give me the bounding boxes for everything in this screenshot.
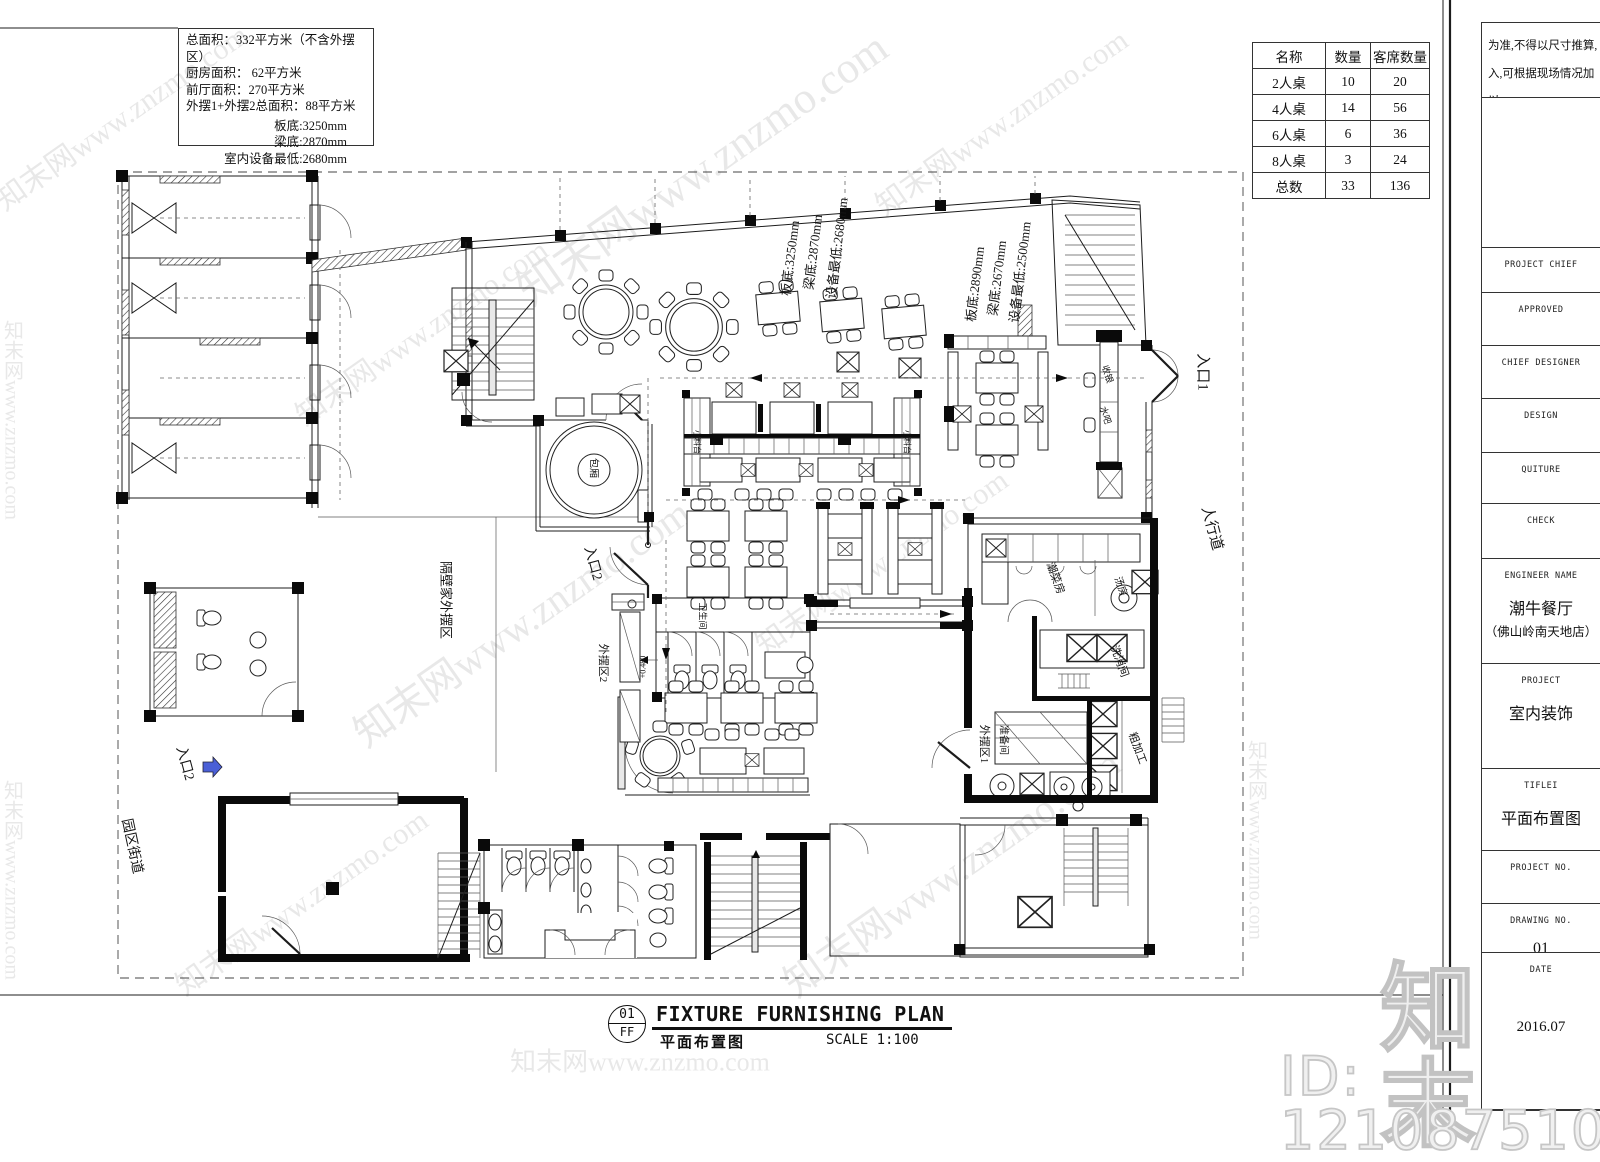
titleblock-label: DRAWING NO. xyxy=(1482,916,1600,926)
sheet-code: FF xyxy=(609,1024,645,1040)
titleblock-field-tiflei: TIFLEI平面布置图 xyxy=(1482,769,1600,851)
seat-table-row: 6人桌636 xyxy=(1253,121,1430,147)
sheet-title-en: FIXTURE FURNISHING PLAN xyxy=(652,1002,952,1030)
cashier-counter xyxy=(1084,330,1122,498)
titleblock-value: 平面布置图 xyxy=(1482,805,1600,829)
seat-table-row: 总数33136 xyxy=(1253,173,1430,199)
seat-table-cell: 33 xyxy=(1326,173,1371,199)
seat-table-cell: 10 xyxy=(1326,69,1371,95)
seat-table-row: 4人桌1456 xyxy=(1253,95,1430,121)
seat-table-header: 数量 xyxy=(1326,43,1371,69)
seat-table-cell: 6 xyxy=(1326,121,1371,147)
top-wall xyxy=(312,176,1140,272)
servery-corridor xyxy=(806,596,973,631)
titleblock-label: QUITURE xyxy=(1482,465,1600,475)
entrance2-door xyxy=(610,517,651,598)
titleblock-field-check: CHECK xyxy=(1482,504,1600,559)
seat-table-cell: 14 xyxy=(1326,95,1371,121)
titleblock-notes: 为准,不得以尺寸推算, 入,可根据现场情况加以 xyxy=(1482,23,1600,98)
seat-table-header: 客席数量 xyxy=(1371,43,1430,69)
titleblock-label: PROJECT CHIEF xyxy=(1482,260,1600,270)
seat-table-cell: 136 xyxy=(1371,173,1430,199)
seat-table-cell: 3 xyxy=(1326,147,1371,173)
sheet-number: 01 xyxy=(609,1006,645,1024)
sheet-scale: SCALE 1:100 xyxy=(826,1032,919,1048)
seat-table-cell: 8人桌 xyxy=(1253,147,1326,173)
titleblock-field-drawing-no-: DRAWING NO.01 xyxy=(1482,904,1600,953)
title-block: 为准,不得以尺寸推算, 入,可根据现场情况加以 PROJECT CHIEFAPP… xyxy=(1481,22,1600,1110)
seat-table-cell: 24 xyxy=(1371,147,1430,173)
titleblock-field-approved: APPROVED xyxy=(1482,293,1600,346)
area-info-line: 厨房面积： 62平方米 xyxy=(186,65,373,82)
seat-table-cell: 6人桌 xyxy=(1253,121,1326,147)
area-info-box: 总面积：332平方米（不含外摆区） 厨房面积： 62平方米 前厅面积：270平方… xyxy=(178,28,374,146)
left-shops xyxy=(116,170,351,508)
titleblock-label: TIFLEI xyxy=(1482,781,1600,791)
sheet-title: 01 FF FIXTURE FURNISHING PLAN 平面布置图 SCAL… xyxy=(608,1000,948,1052)
area-info-line: 总面积：332平方米（不含外摆区） xyxy=(186,32,373,65)
area-info-line: 前厅面积：270平方米 xyxy=(186,82,373,99)
watermark-id: ID: 1210875102 xyxy=(1280,1050,1600,1158)
site-boundary xyxy=(118,172,1243,978)
seat-table-cell: 36 xyxy=(1371,121,1430,147)
seat-table-row: 8人桌324 xyxy=(1253,147,1430,173)
seat-count-table: 名称数量客席数量 2人桌10204人桌14566人桌6368人桌324总数331… xyxy=(1252,42,1430,199)
titleblock-field-design: DESIGN xyxy=(1482,399,1600,453)
note-line: 为准,不得以尺寸推算, xyxy=(1488,33,1598,61)
sheet-number-bubble: 01 FF xyxy=(608,1005,646,1043)
titleblock-field-engineer-name: ENGINEER NAME潮牛餐厅（佛山岭南天地店） xyxy=(1482,559,1600,664)
cad-sheet-page: { "info_block": { "lines": [ "总面积：332平方米… xyxy=(0,0,1600,1131)
bottom-right-rooms xyxy=(954,814,1155,957)
seat-table-cell: 4人桌 xyxy=(1253,95,1326,121)
titleblock-label: DESIGN xyxy=(1482,411,1600,421)
seat-table-cell: 20 xyxy=(1371,69,1430,95)
seat-table-header: 名称 xyxy=(1253,43,1326,69)
titleblock-field-project-no-: PROJECT NO. xyxy=(1482,851,1600,904)
seat-table-header-row: 名称数量客席数量 xyxy=(1253,43,1430,69)
seat-table-row: 2人桌1020 xyxy=(1253,69,1430,95)
upper-dining-tables xyxy=(564,270,927,378)
titleblock-label: CHECK xyxy=(1482,516,1600,526)
titleblock-label: APPROVED xyxy=(1482,305,1600,315)
level-info: 板底:3250mm 梁底:2870mm 室内设备最低:2680mm xyxy=(186,118,373,168)
bottom-left-room xyxy=(218,793,470,962)
sheet-title-cn: 平面布置图 xyxy=(660,1031,745,1052)
titleblock-label: CHIEF DESIGNER xyxy=(1482,358,1600,368)
sheet-borders xyxy=(0,0,1450,1131)
main-stair xyxy=(444,288,534,422)
titleblock-label: PROJECT xyxy=(1482,676,1600,686)
top-right-stairwell xyxy=(1018,200,1146,345)
right-wall-entrance1 xyxy=(1141,340,1178,523)
lower-tables-row xyxy=(665,681,817,735)
seat-table-cell: 56 xyxy=(1371,95,1430,121)
area-info-line: 外摆1+外摆2总面积：88平方米 xyxy=(186,98,373,115)
note-line: 入,可根据现场情况加以 xyxy=(1488,61,1598,98)
bottom-restrooms xyxy=(438,839,696,958)
entrance2-arrow xyxy=(203,757,222,777)
titleblock-value: 室内装饰 xyxy=(1482,700,1600,724)
seat-table-cell: 总数 xyxy=(1253,173,1326,199)
banquette-row xyxy=(682,383,922,500)
titleblock-field-project: PROJECT室内装饰 xyxy=(1482,664,1600,769)
left-bathroom xyxy=(144,582,304,722)
titleblock-empty xyxy=(1482,98,1600,248)
titleblock-field-quiture: QUITURE xyxy=(1482,453,1600,504)
titleblock-value: 潮牛餐厅 xyxy=(1482,595,1600,619)
titleblock-label: PROJECT NO. xyxy=(1482,863,1600,873)
titleblock-value: 01 xyxy=(1482,940,1600,953)
titleblock-field-chief-designer: CHIEF DESIGNER xyxy=(1482,346,1600,399)
titleblock-field-project-chief: PROJECT CHIEF xyxy=(1482,248,1600,293)
titleblock-label: ENGINEER NAME xyxy=(1482,571,1600,581)
seat-table-cell: 2人桌 xyxy=(1253,69,1326,95)
booth-area xyxy=(944,334,1048,467)
bottom-center-stair xyxy=(700,824,960,960)
titleblock-value2: （佛山岭南天地店） xyxy=(1482,621,1600,640)
mid-dining-tables xyxy=(687,499,942,609)
mid-booth-caps xyxy=(816,502,944,509)
kitchen xyxy=(932,518,1184,811)
